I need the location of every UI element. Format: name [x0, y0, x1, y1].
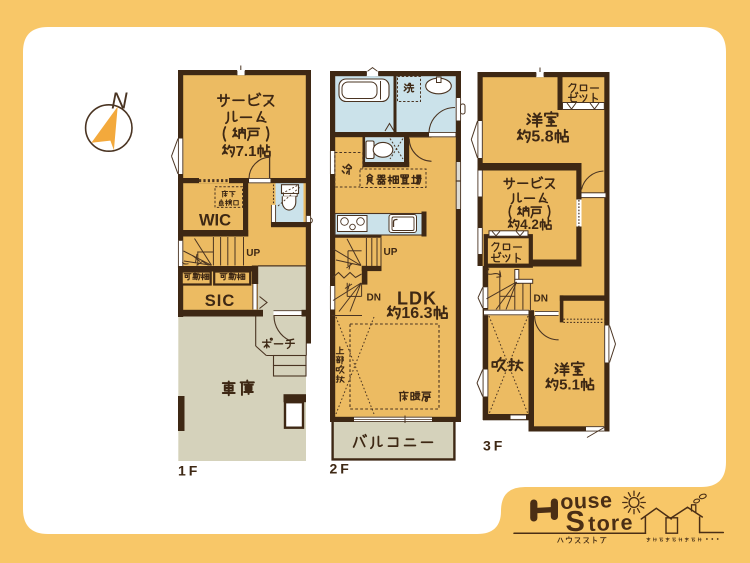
- svg-text:1F: 1F: [178, 463, 200, 479]
- svg-text:UP: UP: [246, 248, 260, 259]
- svg-text:7.1: 7.1: [236, 143, 257, 160]
- svg-text:DN: DN: [367, 293, 381, 304]
- svg-text:SIC: SIC: [205, 292, 236, 310]
- svg-text:tore: tore: [588, 510, 634, 536]
- svg-text:2F: 2F: [330, 461, 352, 477]
- svg-text:16.3: 16.3: [401, 305, 432, 322]
- svg-text:UP: UP: [384, 247, 398, 258]
- svg-text:5.8: 5.8: [531, 129, 553, 146]
- svg-text:S: S: [566, 506, 585, 538]
- svg-text:4.2: 4.2: [520, 217, 539, 232]
- svg-text:N: N: [111, 88, 128, 114]
- svg-text:DN: DN: [534, 294, 548, 305]
- svg-text:WIC: WIC: [199, 212, 231, 230]
- svg-text:5.1: 5.1: [559, 377, 580, 394]
- svg-text:3F: 3F: [483, 438, 505, 454]
